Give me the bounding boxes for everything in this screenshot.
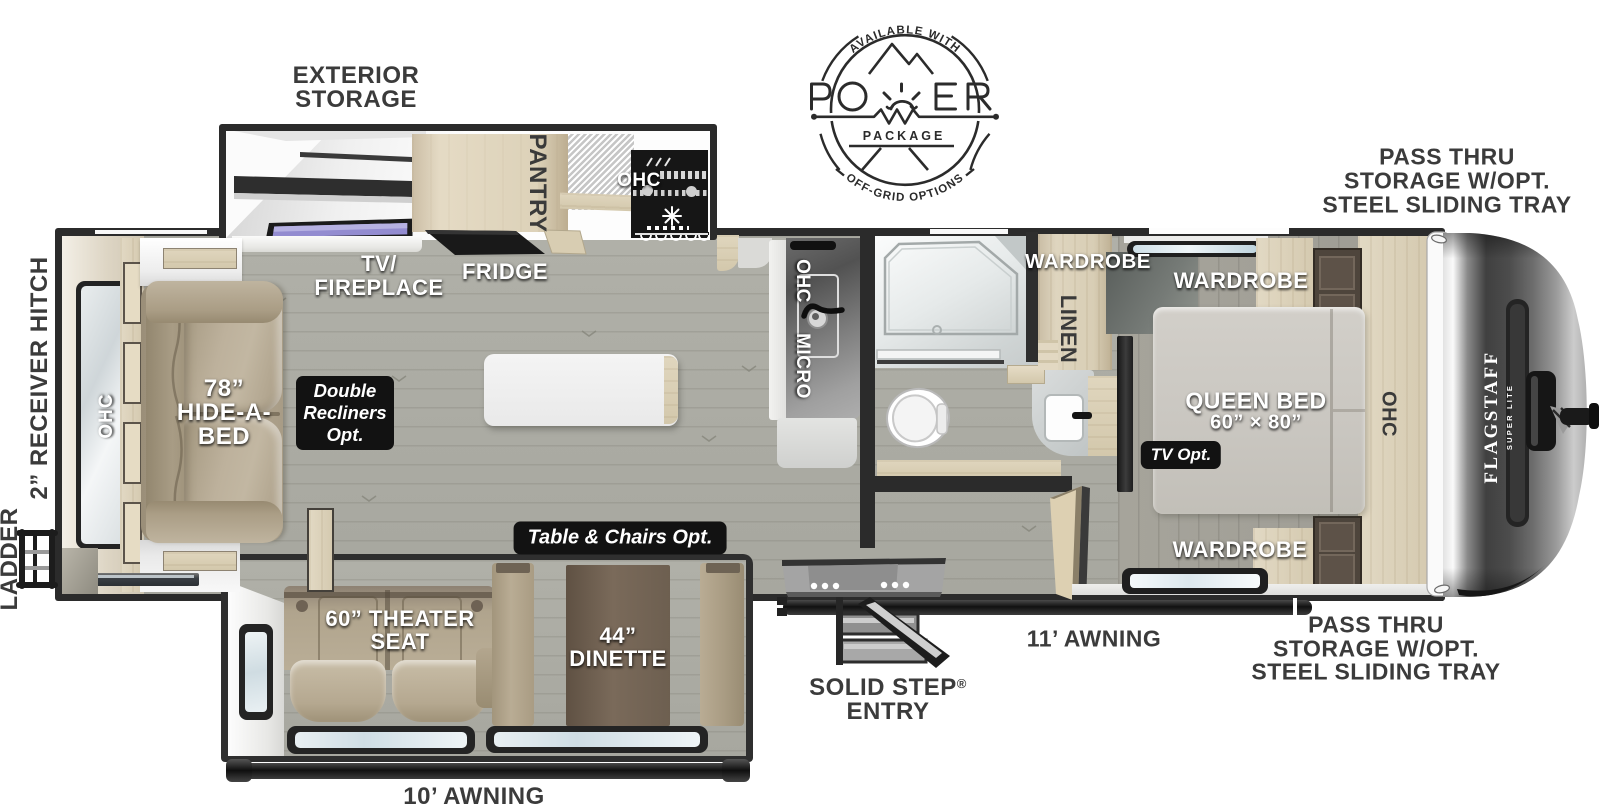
svg-text:AVAILABLE WITH: AVAILABLE WITH — [847, 24, 962, 55]
svg-text:OFF-GRID OPTIONS: OFF-GRID OPTIONS — [844, 172, 967, 205]
svg-text:SUPER LITE: SUPER LITE — [1505, 384, 1514, 450]
svg-text:PACKAGE: PACKAGE — [863, 129, 946, 143]
svg-text:FLAGSTAFF: FLAGSTAFF — [1481, 350, 1502, 483]
